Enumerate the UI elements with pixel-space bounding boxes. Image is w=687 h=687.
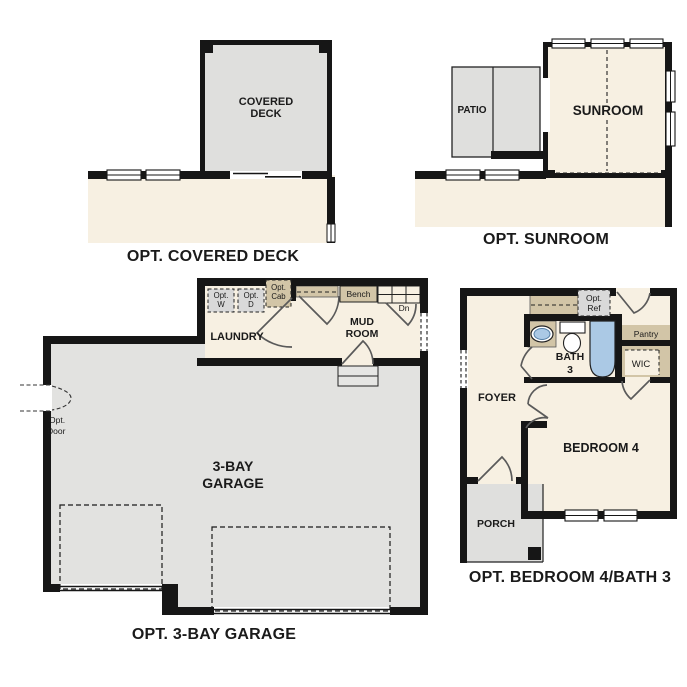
house-floor — [88, 175, 335, 243]
plan-title-sunroom: OPT. SUNROOM — [483, 231, 609, 248]
sunroom-label: SUNROOM — [573, 103, 644, 118]
plan-title-bedroom4-bath3: OPT. BEDROOM 4/BATH 3 — [469, 569, 671, 586]
opt-washer-label: Opt. — [214, 291, 229, 300]
plan-garage: Opt. W Opt. D Opt. Cab LAUNDRY Bench Dn — [20, 278, 428, 643]
garage-label: 3-BAY — [213, 458, 254, 474]
plan-sunroom: SUNROOM PATIO OPT. SUNROOM — [415, 39, 675, 248]
porch-label: PORCH — [477, 518, 515, 530]
deck-label: COVERED — [239, 96, 293, 108]
garage-label-2: GARAGE — [202, 475, 263, 491]
opt-refrigerator: Opt. Ref — [578, 290, 610, 316]
foyer-label: FOYER — [478, 392, 516, 404]
plan-covered-deck: COVERED DECK OPT. COVERED DECK — [88, 40, 335, 265]
opt-dryer-label-2: D — [248, 300, 254, 309]
opt-cabinet-label-2: Cab — [271, 292, 286, 301]
dn-label: Dn — [399, 303, 410, 313]
opt-dryer: Opt. D — [238, 289, 264, 312]
porch-post — [528, 547, 541, 560]
opt-door-label-2: Door — [47, 426, 66, 436]
shelf — [296, 286, 338, 297]
opt-cabinet-label: Opt. — [271, 283, 286, 292]
opt-ref-label-2: Ref — [587, 303, 601, 313]
floor-plan-drawing: COVERED DECK OPT. COVERED DECK — [0, 0, 687, 687]
mud-room-label: MUD — [350, 316, 374, 328]
bath3-label: BATH — [556, 351, 584, 363]
sink — [531, 326, 553, 342]
plan-title-covered-deck: OPT. COVERED DECK — [127, 248, 300, 265]
floor-plan-sheet: COVERED DECK OPT. COVERED DECK — [0, 0, 687, 687]
opt-door-opening — [42, 385, 52, 411]
patio-wall — [491, 151, 543, 159]
sliding-door — [230, 171, 302, 179]
opt-washer-label-2: W — [217, 300, 225, 309]
laundry-label: LAUNDRY — [210, 331, 264, 343]
wall-opening — [541, 78, 550, 132]
plan-bedroom4-bath3: Opt. Ref Pantry BATH 3 WIC FOYER BEDROOM… — [459, 288, 677, 586]
house-floor — [415, 175, 672, 227]
dashed-opening — [459, 350, 468, 388]
wic-label: WIC — [632, 359, 651, 370]
patio-label: PATIO — [457, 105, 486, 116]
bedroom4-label: BEDROOM 4 — [563, 441, 639, 455]
tub — [590, 321, 615, 377]
opt-door-label: Opt. — [49, 415, 65, 425]
stairs — [378, 286, 420, 303]
stoop-steps — [338, 366, 378, 386]
deck-label-2: DECK — [250, 108, 281, 120]
bath3-label-2: 3 — [567, 364, 573, 376]
opt-ref-label: Opt. — [586, 293, 602, 303]
mud-room-label-2: ROOM — [346, 328, 379, 340]
plan-title-garage: OPT. 3-BAY GARAGE — [132, 626, 296, 643]
pantry-label: Pantry — [634, 329, 659, 339]
bench-label: Bench — [346, 289, 370, 299]
opt-dryer-label: Opt. — [244, 291, 259, 300]
opt-washer: Opt. W — [208, 289, 234, 312]
